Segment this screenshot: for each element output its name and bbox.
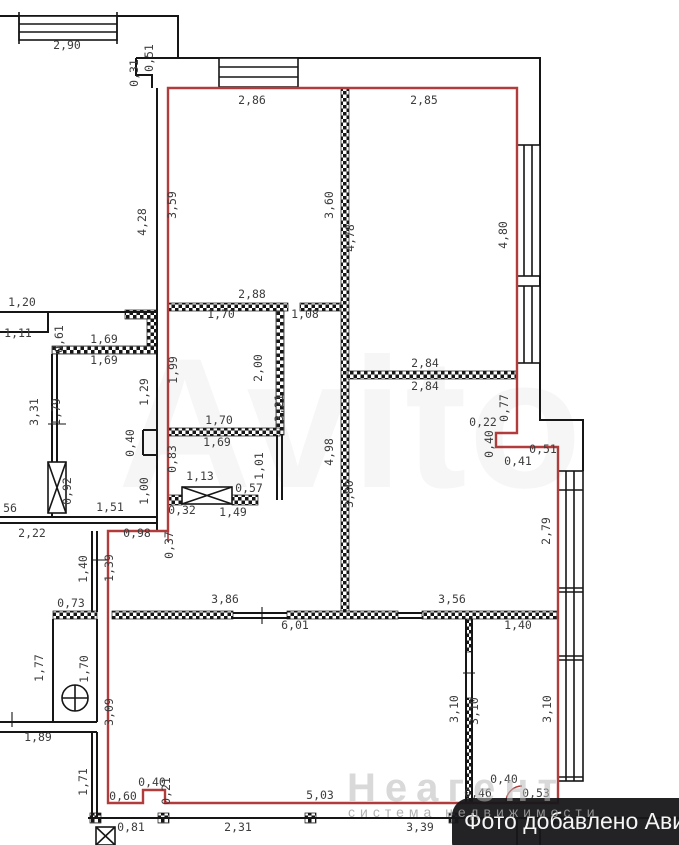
dimension-label: 2,00 — [251, 354, 265, 382]
dimension-label: 3,59 — [165, 191, 179, 219]
dimension-label: 1,49 — [219, 505, 247, 519]
dimension-label: 0,51 — [142, 44, 156, 72]
dimension-label: 2,31 — [224, 820, 252, 834]
dimension-label: 0,81 — [117, 820, 145, 834]
dimension-label: 3,10 — [467, 697, 481, 725]
dimension-label: 3,21 — [272, 394, 286, 422]
dimension-label: 0,22 — [469, 415, 497, 429]
floor-plan-image: 2,900,310,512,862,854,283,593,604,784,80… — [0, 0, 679, 845]
dimension-label: 1,70 — [205, 413, 233, 427]
dimension-label: 1,40 — [76, 555, 90, 583]
dimension-label: 2,22 — [18, 526, 46, 540]
avito-photo-badge: Фото добавлено Авито — [452, 798, 679, 845]
balcony-window-icon — [558, 471, 583, 781]
dimension-label: 1,89 — [24, 730, 52, 744]
dimension-label: 3,60 — [322, 191, 336, 219]
dimension-label: 1,13 — [186, 469, 214, 483]
dimension-label: 2,85 — [410, 93, 438, 107]
dimension-label: 0,37 — [162, 531, 176, 559]
dimension-label: 1,70 — [207, 307, 235, 321]
dimension-label: 3,39 — [406, 820, 434, 834]
dimension-label: 1,69 — [90, 332, 118, 346]
dimension-label: 0,77 — [497, 394, 511, 422]
dimension-label: 2,86 — [238, 93, 266, 107]
dimension-label: 1,70 — [77, 655, 91, 683]
balcony-door-icon — [96, 827, 115, 845]
dimension-label: 6,01 — [281, 618, 309, 632]
dimension-label: 1,20 — [8, 295, 36, 309]
dimension-label: 0,41 — [504, 454, 532, 468]
dimension-label: 0,60 — [109, 789, 137, 803]
dimension-label: 0,57 — [235, 481, 263, 495]
dimension-label: 3,56 — [438, 592, 466, 606]
dimension-label: 0,32 — [168, 503, 196, 517]
dimension-label: 2,88 — [238, 287, 266, 301]
dimension-label: 1,69 — [203, 435, 231, 449]
dimension-label: 1,77 — [32, 654, 46, 682]
dimension-label: 4,80 — [496, 221, 510, 249]
window-bedroom1-icon — [219, 58, 298, 87]
dimension-label: 2,84 — [411, 379, 439, 393]
dimension-label: 0,61 — [52, 325, 66, 353]
dimension-label: 5,03 — [306, 788, 334, 802]
floor-plan-svg: 2,900,310,512,862,854,283,593,604,784,80… — [0, 0, 679, 845]
dimension-label: 1,39 — [102, 554, 116, 582]
dimension-label: 1,00 — [137, 477, 151, 505]
dimension-label: 0,83 — [165, 445, 179, 473]
dimension-label: 3,80 — [342, 480, 356, 508]
avito-photo-badge-text: Фото добавлено Авито — [464, 808, 679, 835]
dimension-label: 4,28 — [135, 208, 149, 236]
dimension-label: 0,92 — [60, 477, 74, 505]
dimension-label: 0,98 — [123, 526, 151, 540]
dimension-label: 1,71 — [76, 768, 90, 796]
dimension-label: 0,40 — [490, 772, 518, 786]
dimension-label: 2,84 — [411, 356, 439, 370]
dimension-label: 3,09 — [102, 698, 116, 726]
dimension-label: 0,51 — [529, 442, 557, 456]
dimension-label: 1,40 — [504, 618, 532, 632]
dimension-label: 2,79 — [539, 517, 553, 545]
ventilation-circle-icon — [62, 685, 88, 711]
dimension-label: 1,01 — [252, 452, 266, 480]
dimension-label: 3,10 — [447, 695, 461, 723]
dimension-label: 0,21 — [159, 777, 173, 805]
dimension-label: 0,73 — [57, 596, 85, 610]
dimension-label: 0,40 — [482, 430, 496, 458]
dimension-label: 4,98 — [322, 438, 336, 466]
dimension-label: 4,78 — [343, 224, 357, 252]
dimension-label: 3,86 — [211, 592, 239, 606]
dimension-label: 0,40 — [123, 429, 137, 457]
dimension-label: 1,29 — [137, 378, 151, 406]
vent-shaft-icon — [182, 487, 232, 504]
dimension-label: 56 — [3, 501, 17, 515]
dimension-label: 2,90 — [53, 38, 81, 52]
dimension-label: 1,08 — [291, 307, 319, 321]
dimension-label: 1,11 — [4, 326, 32, 340]
dimension-label: 1,51 — [96, 500, 124, 514]
dimension-label: 1,69 — [90, 353, 118, 367]
dimension-label: 3,10 — [540, 695, 554, 723]
dimension-label: 3,31 — [27, 398, 41, 426]
dimension-label: 1,99 — [166, 356, 180, 384]
dimension-label: 1,79 — [49, 398, 63, 426]
dimension-label: 0,31 — [127, 59, 141, 87]
window-bedroom2-icon — [517, 145, 540, 363]
